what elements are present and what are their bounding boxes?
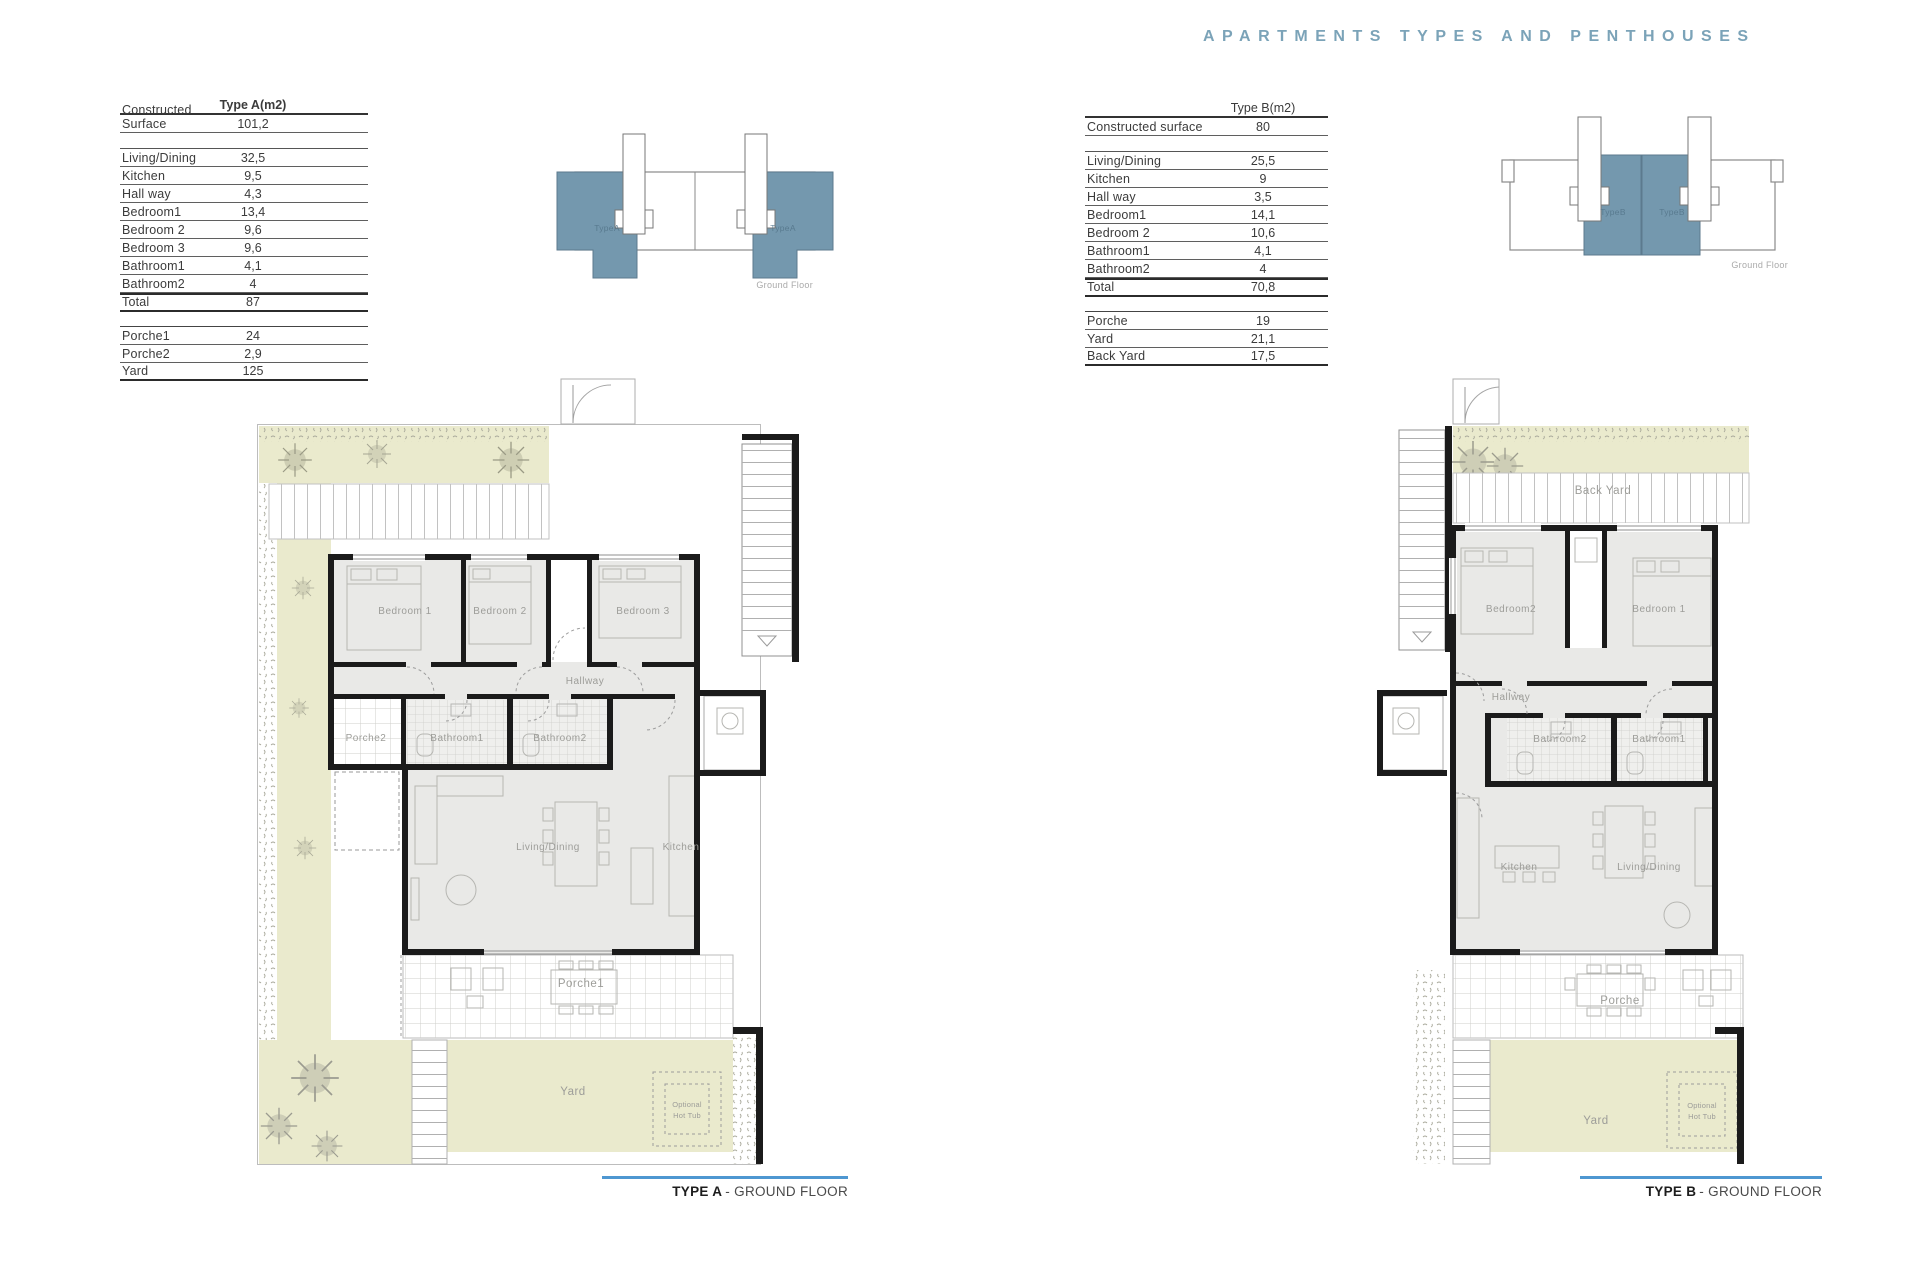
- type-b-floor-plan: Back Yard Bedroom2 Bedroom 1 Hallway Bat…: [1365, 378, 1755, 1188]
- room-label-bathroom1: Bathroom1: [430, 733, 483, 744]
- room-label-bedroom3: Bedroom 3: [616, 606, 669, 617]
- room-label-living: Living/Dining: [1617, 862, 1681, 873]
- table-header-row: Type B(m2): [1085, 98, 1328, 118]
- stair-core-icon: [745, 134, 767, 234]
- table-row: Bathroom24: [1085, 260, 1328, 278]
- caption-suffix: - GROUND FLOOR: [725, 1184, 848, 1199]
- table-row: Bedroom 39,6: [120, 239, 368, 257]
- room-label-porche2: Porche2: [346, 733, 387, 744]
- stair-core-icon: [1578, 117, 1601, 221]
- type-b-caption: TYPE B- GROUND FLOOR: [1580, 1176, 1822, 1199]
- room-label-yard: Yard: [1583, 1115, 1608, 1127]
- room-label-hallway: Hallway: [566, 676, 605, 687]
- outdoor-group: Porche19 Yard21,1 Back Yard17,5: [1085, 311, 1328, 366]
- unit-label: TypeA: [770, 223, 796, 233]
- caption-name: TYPE A: [672, 1184, 722, 1199]
- type-a-floor-plan: Bedroom 1 Bedroom 2 Bedroom 3 Hallway Po…: [255, 378, 800, 1188]
- table-row: Porche19: [1085, 312, 1328, 330]
- hot-tub-label: Optional: [672, 1100, 702, 1109]
- table-row: Back Yard17,5: [1085, 348, 1328, 366]
- row-label: Constructed Surface: [120, 103, 198, 131]
- table-row: Living/Dining32,5: [120, 149, 368, 167]
- room-label-bathroom2: Bathroom2: [1533, 734, 1586, 745]
- row-value: 101,2: [198, 117, 308, 131]
- back-yard-area: [1452, 426, 1749, 523]
- laundry-room: [1377, 690, 1447, 776]
- table-a-header: Type A(m2): [198, 98, 308, 112]
- table-b-header: Type B(m2): [1208, 101, 1318, 115]
- table-row: Yard21,1: [1085, 330, 1328, 348]
- table-row: Bedroom113,4: [120, 203, 368, 221]
- room-label-back-yard: Back Yard: [1575, 485, 1632, 497]
- table-row: Hall way4,3: [120, 185, 368, 203]
- room-label-porche: Porche: [1600, 995, 1639, 1007]
- optional-extension: [335, 772, 399, 850]
- table-row: Hall way3,5: [1085, 188, 1328, 206]
- entry-door: [1453, 379, 1499, 424]
- rooms-group: Living/Dining32,5 Kitchen9,5 Hall way4,3…: [120, 148, 368, 312]
- total-row: Total70,8: [1085, 278, 1328, 297]
- table-row: Bedroom 29,6: [120, 221, 368, 239]
- table-row: Kitchen9,5: [120, 167, 368, 185]
- room-label-bedroom1: Bedroom 1: [378, 606, 431, 617]
- outdoor-group: Porche124 Porche22,9 Yard125: [120, 326, 368, 381]
- room-label-hallway: Hallway: [1492, 692, 1531, 703]
- total-row: Total87: [120, 293, 368, 312]
- hot-tub-label: Hot Tub: [1688, 1112, 1716, 1121]
- hot-tub-label: Optional: [1687, 1101, 1717, 1110]
- table-row: Bedroom114,1: [1085, 206, 1328, 224]
- type-a-spec-table: Type A(m2) Constructed Surface 101,2 Liv…: [120, 95, 368, 381]
- room-label-bedroom1: Bedroom 1: [1632, 604, 1685, 615]
- staircase: [742, 434, 799, 662]
- room-label-bedroom2: Bedroom2: [1486, 604, 1536, 615]
- unit-label: TypeA: [594, 223, 620, 233]
- table-row: Bathroom14,1: [120, 257, 368, 275]
- caption-name: TYPE B: [1646, 1184, 1697, 1199]
- table-row: Living/Dining25,5: [1085, 152, 1328, 170]
- stair-core-icon: [1688, 117, 1711, 221]
- yard-area: [1490, 1040, 1743, 1152]
- room-label-yard: Yard: [560, 1086, 585, 1098]
- table-row: Bathroom24: [120, 275, 368, 293]
- type-b-spec-table: Type B(m2) Constructed surface 80 Living…: [1085, 98, 1328, 366]
- room-label-kitchen: Kitchen: [663, 842, 700, 853]
- room-label-bathroom2: Bathroom2: [533, 733, 586, 744]
- type-b-locator-diagram: TypeB TypeB Ground Floor: [1500, 115, 1800, 280]
- table-row: Kitchen9: [1085, 170, 1328, 188]
- table-row: Constructed surface 80: [1085, 118, 1328, 136]
- staircase: [1399, 426, 1452, 652]
- room-label-porche1: Porche1: [558, 978, 604, 990]
- type-a-locator-diagram: TypeA TypeA Ground Floor: [545, 128, 845, 298]
- table-row: Bedroom 210,6: [1085, 224, 1328, 242]
- sliding-door: [1520, 951, 1665, 954]
- room-label-bedroom2: Bedroom 2: [473, 606, 526, 617]
- page-canvas: APARTMENTS TYPES AND PENTHOUSES Type A(m…: [0, 0, 1920, 1280]
- windows: [353, 552, 679, 561]
- page-title: APARTMENTS TYPES AND PENTHOUSES: [1203, 28, 1756, 46]
- stair-core-icon: [623, 134, 645, 234]
- table-row: Bathroom14,1: [1085, 242, 1328, 260]
- entry-door: [561, 379, 635, 424]
- room-label-living: Living/Dining: [516, 842, 580, 853]
- rooms-group: Living/Dining25,5 Kitchen9 Hall way3,5 B…: [1085, 151, 1328, 297]
- room-label-bathroom1: Bathroom1: [1632, 734, 1685, 745]
- hot-tub-label: Hot Tub: [673, 1111, 701, 1120]
- ground-floor-label: Ground Floor: [756, 280, 813, 290]
- caption-suffix: - GROUND FLOOR: [1699, 1184, 1822, 1199]
- table-row: Porche22,9: [120, 345, 368, 363]
- ground-floor-label: Ground Floor: [1731, 260, 1788, 270]
- room-label-kitchen: Kitchen: [1501, 862, 1538, 873]
- unit-label: TypeB: [1659, 207, 1685, 217]
- table-row: Constructed Surface 101,2: [120, 115, 368, 133]
- laundry-room: [700, 690, 766, 776]
- table-row: Porche124: [120, 327, 368, 345]
- unit-label: TypeB: [1600, 207, 1626, 217]
- type-a-caption: TYPE A- GROUND FLOOR: [602, 1176, 848, 1199]
